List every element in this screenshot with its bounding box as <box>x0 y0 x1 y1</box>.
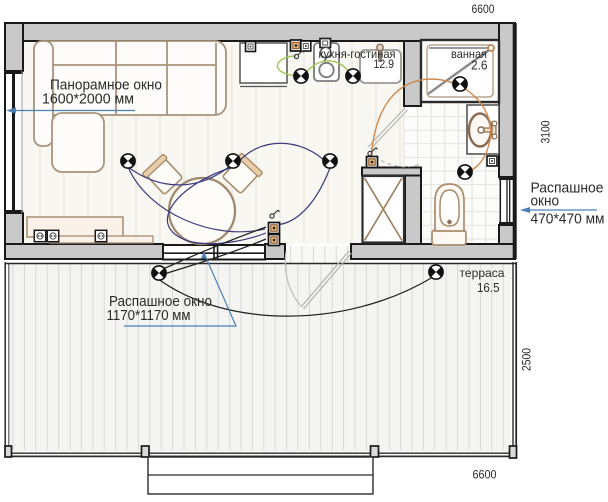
svg-text:2500: 2500 <box>522 348 534 371</box>
svg-text:6600: 6600 <box>473 470 497 482</box>
svg-text:16.5: 16.5 <box>477 280 500 295</box>
svg-text:6600: 6600 <box>472 4 495 16</box>
svg-text:терраса: терраса <box>460 266 505 280</box>
svg-text:12.9: 12.9 <box>374 57 395 71</box>
svg-text:окно: окно <box>531 194 560 210</box>
svg-text:1600*2000 мм: 1600*2000 мм <box>42 92 134 108</box>
svg-text:470*470 мм: 470*470 мм <box>531 212 605 228</box>
svg-text:3100: 3100 <box>541 121 553 144</box>
svg-text:1170*1170 мм: 1170*1170 мм <box>107 308 191 324</box>
svg-text:2.6: 2.6 <box>471 58 488 73</box>
